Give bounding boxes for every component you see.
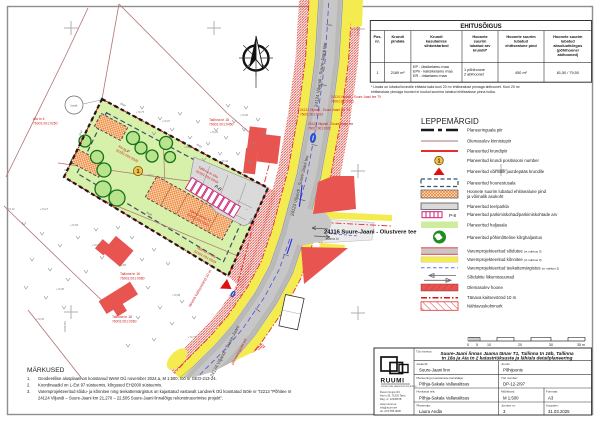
svg-text:Planeeritud tee/parkla: Planeeritud tee/parkla	[467, 204, 509, 209]
svg-text:24116 Suure-Jaani - Olustvere: 24116 Suure-Jaani - Olustvere tee	[324, 230, 417, 236]
svg-text:10: 10	[487, 343, 491, 347]
svg-text:+74,35: +74,35	[36, 317, 45, 321]
svg-text:+74,65: +74,65	[70, 223, 79, 227]
svg-text:1: 1	[376, 71, 378, 75]
svg-text:Planeeritud võimalik juurdepää: Planeeritud võimalik juurdepääs krundile	[467, 169, 545, 174]
svg-text:EP - üksikelamu maa: EP - üksikelamu maa	[413, 65, 450, 69]
svg-text:Krundi: Krundi	[392, 35, 404, 39]
svg-text:+74,06: +74,06	[240, 113, 249, 117]
svg-text:Sõidukite liikumissuunad: Sõidukite liikumissuunad	[467, 275, 515, 280]
svg-text:LEPPEMÄRGID: LEPPEMÄRGID	[421, 117, 479, 126]
svg-text:tel +372 555 0000: tel +372 555 0000	[380, 409, 401, 413]
svg-text:sihtotstarbed: sihtotstarbed	[424, 44, 449, 48]
svg-text:Kuupäev:: Kuupäev:	[546, 404, 559, 408]
svg-text:2 abihoonet: 2 abihoonet	[464, 73, 485, 77]
svg-text:ja võimalik asukoht: ja võimalik asukoht	[466, 194, 504, 199]
svg-text:Joonis:: Joonis:	[501, 362, 511, 366]
svg-text:Asukoht:: Asukoht:	[417, 362, 429, 366]
svg-text:Planeeritud krundi positsiooni: Planeeritud krundi positsiooni number	[467, 158, 539, 163]
svg-text:A3: A3	[548, 396, 554, 401]
svg-text:tn 18a ja Aia tn 2 katastriüks: tn 18a ja Aia tn 2 katastriüksuste ja lä…	[442, 355, 573, 360]
svg-text:absoluutkõrgus: absoluutkõrgus	[553, 44, 582, 48]
svg-text:Planeeritud parkimiskohad/park: Planeeritud parkimiskohad/parkimiskohtad…	[467, 212, 558, 217]
svg-text:81,50 / 79,50: 81,50 / 79,50	[557, 71, 579, 75]
svg-text:Varemprojekteeritud sõidutee (: Varemprojekteeritud sõidutee (vt märkus …	[467, 249, 542, 254]
svg-text:1: 1	[438, 159, 441, 165]
svg-text:Põhja-Sakala Vallavalitsus: Põhja-Sakala Vallavalitsus	[419, 396, 469, 401]
svg-text:Olemasolev kinnistupiir: Olemasolev kinnistupiir	[467, 139, 512, 144]
svg-text:Reg. nr. 12345678: Reg. nr. 12345678	[380, 397, 402, 401]
svg-text:Hoonete suurim: Hoonete suurim	[553, 35, 583, 39]
svg-text:* Lisaks on lubatud krundile e: * Lisaks on lubatud krundile ehitada kak…	[371, 85, 521, 89]
svg-text:RUUMILOOME JA ARHITEKTUURI BÜR: RUUMILOOME JA ARHITEKTUURI BÜROO	[381, 385, 417, 388]
svg-text:Hoonete: Hoonete	[472, 35, 487, 39]
svg-text:76001:001:0021: 76001:001:0021	[331, 100, 354, 104]
svg-text:Planeeritud krundipiir: Planeeritud krundipiir	[467, 149, 508, 154]
svg-text:76001:001:0060: 76001:001:0060	[112, 320, 137, 324]
svg-text:Põhja-Sakala Vallavalitsus: Põhja-Sakala Vallavalitsus	[419, 382, 469, 387]
svg-text:24124 Viljandi - Suure-Jaani t: 24124 Viljandi - Suure-Jaani tee	[308, 122, 354, 126]
svg-text:Planeeritud hoonestusala: Planeeritud hoonestusala	[467, 180, 516, 185]
svg-text:+74,05: +74,05	[56, 287, 65, 291]
svg-text:Olemasolev hoone: Olemasolev hoone	[467, 285, 503, 290]
svg-text:Planeeritud põhimõtteline kõrg: Planeeritud põhimõtteline kõrghaljastus	[467, 235, 542, 240]
svg-text:6488450: 6488450	[63, 321, 67, 332]
svg-text:Planeeritud haljasala: Planeeritud haljasala	[467, 222, 508, 227]
svg-text:30: 30	[549, 343, 553, 347]
svg-text:Laura Andla: Laura Andla	[419, 409, 443, 414]
svg-text:Ruumi Grupp OÜ: Ruumi Grupp OÜ	[380, 390, 400, 394]
svg-text:kasutamise: kasutamise	[426, 40, 447, 44]
svg-text:Töö nimetus:: Töö nimetus:	[416, 350, 432, 354]
svg-text:76001:001:0022: 76001:001:0022	[308, 127, 331, 131]
svg-text:www.ruumi.ee: www.ruumi.ee	[380, 402, 397, 406]
svg-text:0: 0	[467, 343, 469, 347]
svg-text:Pos.: Pos.	[373, 35, 381, 39]
svg-text:info@ruumi.ee: info@ruumi.ee	[380, 405, 397, 409]
svg-text:+74,26: +74,26	[210, 130, 219, 134]
svg-text:kuusk: kuusk	[71, 104, 78, 108]
svg-text:24124 Viljandi – Suure-Jaani k: 24124 Viljandi – Suure-Jaani km 21,270 –…	[38, 396, 223, 401]
svg-text:5: 5	[476, 343, 478, 347]
svg-text:20: 20	[518, 343, 522, 347]
svg-text:M 1:500: M 1:500	[503, 396, 519, 401]
svg-text:Nähtavuskolmnurk: Nähtavuskolmnurk	[467, 304, 503, 309]
svg-text:2.: 2.	[27, 383, 31, 388]
svg-text:24124 Viljandi - Suure-Jaani t: 24124 Viljandi - Suure-Jaani tee T9	[331, 95, 381, 99]
svg-text:+74,44: +74,44	[220, 159, 229, 163]
svg-text:3.: 3.	[27, 389, 31, 394]
svg-text:Geodeetilise alusplaani on koo: Geodeetilise alusplaani on koostanud WeW…	[38, 376, 217, 381]
svg-text:Töö number:: Töö number:	[501, 376, 518, 380]
svg-text:P-8: P-8	[449, 213, 457, 218]
svg-text:Aia tn 25, 71020 Tartu: Aia tn 25, 71020 Tartu	[380, 393, 406, 397]
svg-text:76001:001:0080: 76001:001:0080	[120, 277, 145, 281]
svg-text:suurim: suurim	[474, 40, 487, 44]
svg-text:Tallinna tn 18: Tallinna tn 18	[209, 118, 229, 122]
svg-text:Planeerija:: Planeerija:	[417, 404, 431, 408]
svg-text:Mõõtkava:: Mõõtkava:	[501, 390, 515, 394]
svg-text:Varemprojekteeritud kõnnitee (: Varemprojekteeritud kõnnitee (vt märkus …	[467, 257, 542, 262]
svg-text:76001:001:0450: 76001:001:0450	[209, 123, 234, 127]
svg-text:31.03.2025: 31.03.2025	[548, 409, 570, 414]
svg-text:Tallinna tn 16: Tallinna tn 16	[120, 272, 140, 276]
svg-text:+73,75: +73,75	[188, 335, 197, 339]
svg-text:lubatud arv: lubatud arv	[470, 44, 492, 48]
svg-text:2169 m²: 2169 m²	[391, 71, 406, 75]
svg-text:Varemprojekteeritud teekattemä: Varemprojekteeritud teekattemärgistus (v…	[467, 265, 559, 270]
svg-text:+74,11: +74,11	[146, 173, 154, 177]
svg-text:abihooned): abihooned)	[557, 53, 578, 57]
svg-text:1: 1	[136, 169, 139, 175]
svg-text:+74,75: +74,75	[136, 110, 145, 114]
svg-text:pindala: pindala	[391, 40, 405, 44]
svg-text:76001:001:0019: 76001:001:0019	[300, 113, 323, 117]
svg-text:lubatud: lubatud	[561, 40, 576, 44]
svg-text:Põhijoonis: Põhijoonis	[503, 368, 523, 373]
svg-text:Aia tn 4: Aia tn 4	[33, 117, 45, 121]
svg-text:1 põhihoone: 1 põhihoone	[464, 68, 485, 72]
svg-text:Huvitatud isik:: Huvitatud isik:	[417, 390, 436, 394]
svg-text:EPk - kaksikelamu maa: EPk - kaksikelamu maa	[413, 70, 454, 74]
svg-text:+74,34: +74,34	[184, 145, 193, 149]
svg-text:Krundi: Krundi	[430, 35, 442, 39]
svg-text:Planeeringuala piir: Planeeringuala piir	[467, 128, 503, 133]
svg-text:ehitisealuse pinnaga hooned ei: ehitisealuse pinnaga hooned ei kuulud su…	[371, 90, 496, 94]
svg-text:1.: 1.	[27, 376, 31, 381]
svg-text:Tänava kaitsevöönd 10 m: Tänava kaitsevöönd 10 m	[467, 295, 517, 300]
svg-text:DP-12-2/97: DP-12-2/97	[503, 382, 526, 387]
svg-text:Joonise nr:: Joonise nr:	[501, 404, 516, 408]
svg-text:EHITUSÕIGUS: EHITUSÕIGUS	[460, 23, 501, 30]
svg-text:35 m: 35 m	[577, 343, 585, 347]
svg-text:Suure-Jaani linn: Suure-Jaani linn	[419, 368, 451, 373]
svg-text:76001:001:0250: 76001:001:0250	[33, 122, 58, 126]
svg-text:lubatud: lubatud	[514, 40, 529, 44]
svg-text:krundil*: krundil*	[473, 49, 488, 53]
svg-text:Jaama tn: Jaama tn	[325, 237, 339, 241]
svg-text:Koordinaadid on L-Est 97 süste: Koordinaadid on L-Est 97 süsteemis, kõrg…	[38, 383, 162, 388]
svg-text:RUUMI: RUUMI	[381, 378, 405, 385]
svg-text:Hoonete suurim: Hoonete suurim	[506, 35, 536, 39]
svg-text:Varemprojekteeritud sõidu- ja: Varemprojekteeritud sõidu- ja kõnnitee n…	[38, 389, 292, 394]
svg-text:+73,95: +73,95	[92, 243, 101, 247]
svg-text:(põhihoone/: (põhihoone/	[557, 49, 580, 53]
svg-text:450 m²: 450 m²	[515, 71, 528, 75]
svg-text:ER - ridaelamu maa: ER - ridaelamu maa	[413, 74, 448, 78]
svg-text:Tallinna tn 18: Tallinna tn 18	[112, 315, 132, 319]
svg-text:ehitisealune pind: ehitisealune pind	[505, 44, 537, 48]
svg-text:nr.: nr.	[375, 40, 380, 44]
svg-text:Formaat:: Formaat:	[546, 390, 558, 394]
svg-text:24124 Viljandi - Suure-Jaani t: 24124 Viljandi - Suure-Jaani tee T4	[300, 108, 350, 112]
svg-text:+74,07: +74,07	[162, 119, 171, 123]
svg-text:+74,27: +74,27	[40, 207, 49, 211]
svg-text:+73,98: +73,98	[172, 293, 181, 297]
svg-text:MÄRKUSED: MÄRKUSED	[27, 366, 65, 374]
svg-text:Planeeringu koostamise korrald: Planeeringu koostamise korraldaja:	[417, 376, 464, 380]
svg-text:+73,85: +73,85	[118, 263, 127, 267]
